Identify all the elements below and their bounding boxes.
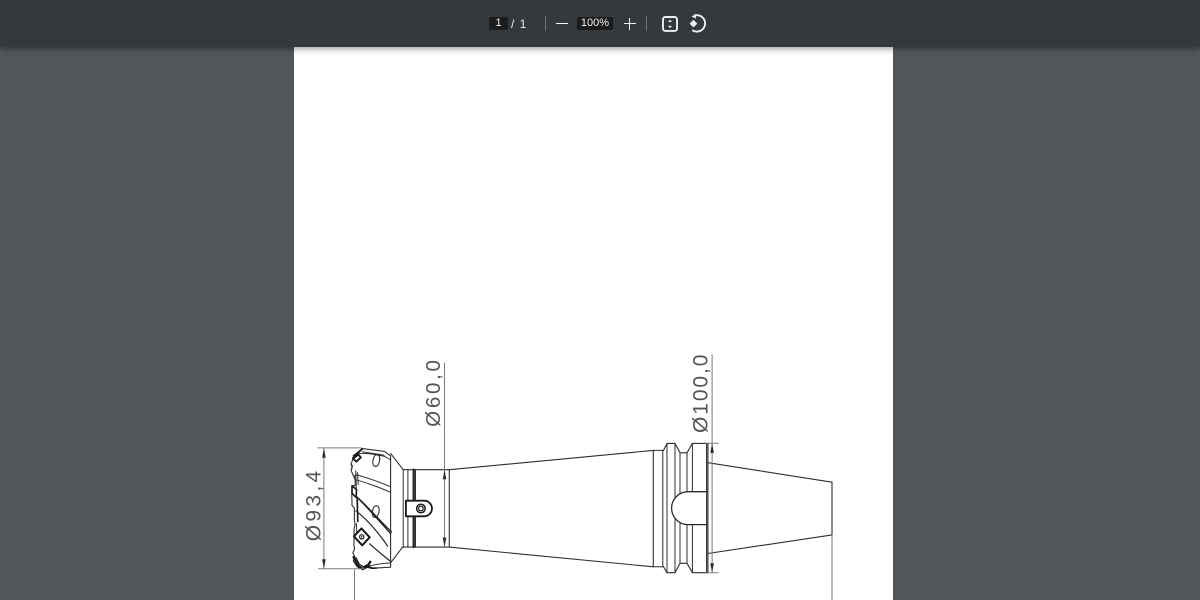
svg-text:Ø60,0: Ø60,0 <box>422 357 445 427</box>
svg-text:Ø93,4: Ø93,4 <box>302 467 325 541</box>
svg-text:Ø100,0: Ø100,0 <box>690 353 713 433</box>
